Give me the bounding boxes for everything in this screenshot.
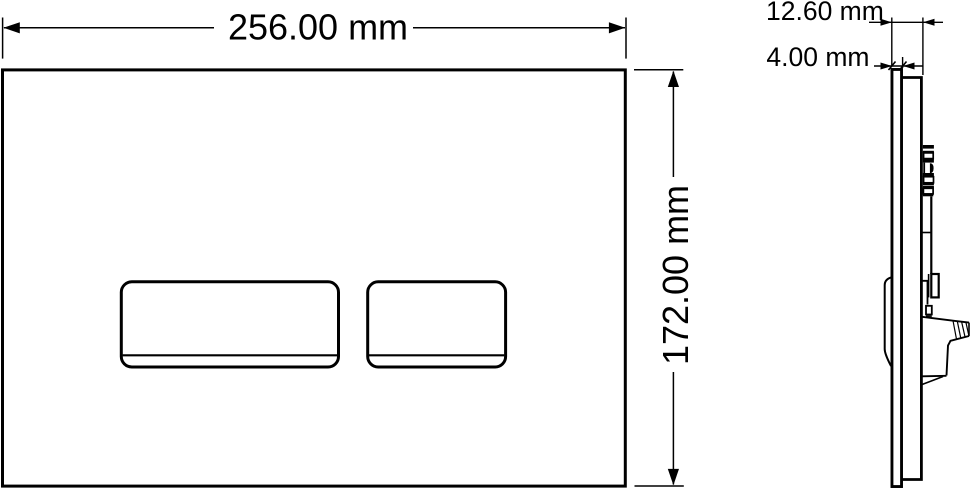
svg-text:12.60 mm: 12.60 mm xyxy=(766,0,884,26)
svg-text:256.00 mm: 256.00 mm xyxy=(228,7,408,48)
svg-text:4.00 mm: 4.00 mm xyxy=(766,42,869,72)
svg-text:172.00 mm: 172.00 mm xyxy=(655,185,696,365)
